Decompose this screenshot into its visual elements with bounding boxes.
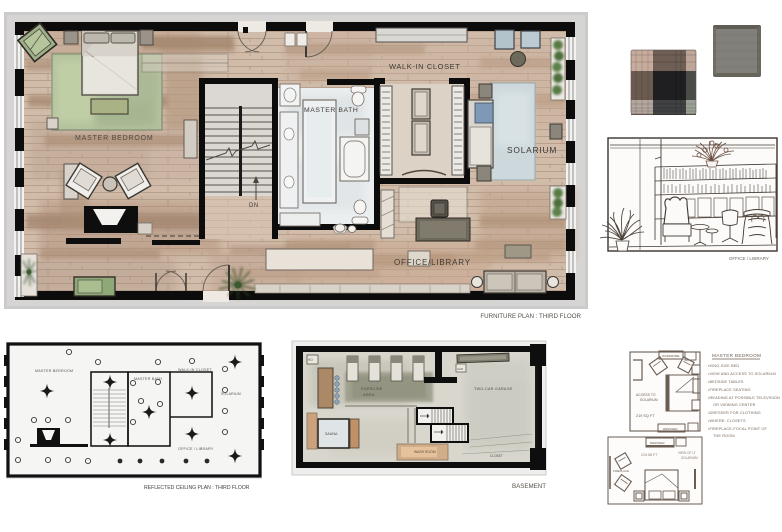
svg-text:FURNITURE PLAN : THIRD FLOOR: FURNITURE PLAN : THIRD FLOOR: [480, 313, 581, 320]
svg-text:MASTER BATH: MASTER BATH: [134, 377, 162, 381]
svg-text:SOLARIUM: SOLARIUM: [640, 398, 658, 402]
svg-text:ACCESS TO: ACCESS TO: [636, 393, 656, 397]
svg-text:OFFICE / LIBRARY: OFFICE / LIBRARY: [178, 447, 214, 451]
svg-text:GAR: GAR: [457, 367, 463, 371]
svg-text:EXERCISE: EXERCISE: [361, 387, 383, 391]
svg-text:219.58 FT: 219.58 FT: [641, 453, 658, 457]
svg-text:SAUNA: SAUNA: [325, 432, 338, 436]
svg-text:•FIREPLACE-FOCAL POINT OF: •FIREPLACE-FOCAL POINT OF: [708, 426, 768, 431]
svg-text:BASEMENT: BASEMENT: [512, 483, 546, 490]
svg-text:FIREPLACE: FIREPLACE: [613, 469, 629, 473]
svg-text:OFFICE/LIBRARY: OFFICE/LIBRARY: [394, 258, 471, 267]
svg-text:•FIREPLACE SEATING: •FIREPLACE SEATING: [708, 387, 751, 392]
svg-text:•READING AT POSSIBLE TELEVISIO: •READING AT POSSIBLE TELEVISION: [708, 395, 780, 400]
svg-text:MASTER BEDROOM: MASTER BEDROOM: [712, 353, 761, 358]
svg-text:WARDROBE: WARDROBE: [662, 354, 680, 358]
svg-text:CLOSET: CLOSET: [490, 454, 503, 458]
svg-text:WALK-IN CLOSET: WALK-IN CLOSET: [389, 62, 460, 71]
svg-text:SOLARIUM: SOLARIUM: [507, 145, 557, 155]
svg-text:MASTER BEDROOM: MASTER BEDROOM: [75, 135, 153, 142]
svg-text:HO: HO: [308, 358, 313, 362]
svg-text:•WHERE: CLOSETS: •WHERE: CLOSETS: [708, 418, 746, 423]
svg-text:•VIEW AND ACCESS TO SOLARIUM: •VIEW AND ACCESS TO SOLARIUM: [708, 371, 776, 376]
svg-text:THE ROOM: THE ROOM: [713, 433, 735, 438]
svg-text:VIEW OF LT: VIEW OF LT: [678, 451, 696, 455]
svg-text:TWO-CAR GARAGE: TWO-CAR GARAGE: [474, 387, 513, 391]
svg-text:WALK-IN CLOSET: WALK-IN CLOSET: [178, 368, 212, 372]
svg-text:SOLARIUM: SOLARIUM: [221, 392, 241, 396]
svg-text:•DRESSER FOR CLOTHING: •DRESSER FOR CLOTHING: [708, 410, 761, 415]
svg-text:MASTER BEDROOM: MASTER BEDROOM: [35, 369, 73, 373]
svg-text:DN: DN: [249, 203, 259, 209]
svg-text:•KING-SIZE BED: •KING-SIZE BED: [708, 363, 739, 368]
svg-text:•BEDSIDE TABLES: •BEDSIDE TABLES: [708, 379, 744, 384]
svg-text:WASH ROOM: WASH ROOM: [414, 450, 436, 454]
svg-text:MASTER BATH: MASTER BATH: [304, 107, 358, 114]
svg-text:219 SQ FT: 219 SQ FT: [636, 414, 655, 418]
svg-text:REFLECTED CEILING PLAN : THIRD: REFLECTED CEILING PLAN : THIRD FLOOR: [144, 485, 250, 491]
svg-text:AREA: AREA: [363, 393, 375, 397]
svg-text:SOLARIUM: SOLARIUM: [681, 456, 698, 460]
svg-text:OR VIEWING CENTER: OR VIEWING CENTER: [713, 402, 756, 407]
svg-text:DRESSER: DRESSER: [663, 427, 678, 431]
svg-text:OFFICE / LIBRARY: OFFICE / LIBRARY: [729, 256, 769, 261]
svg-text:DRESSER: DRESSER: [650, 441, 665, 445]
